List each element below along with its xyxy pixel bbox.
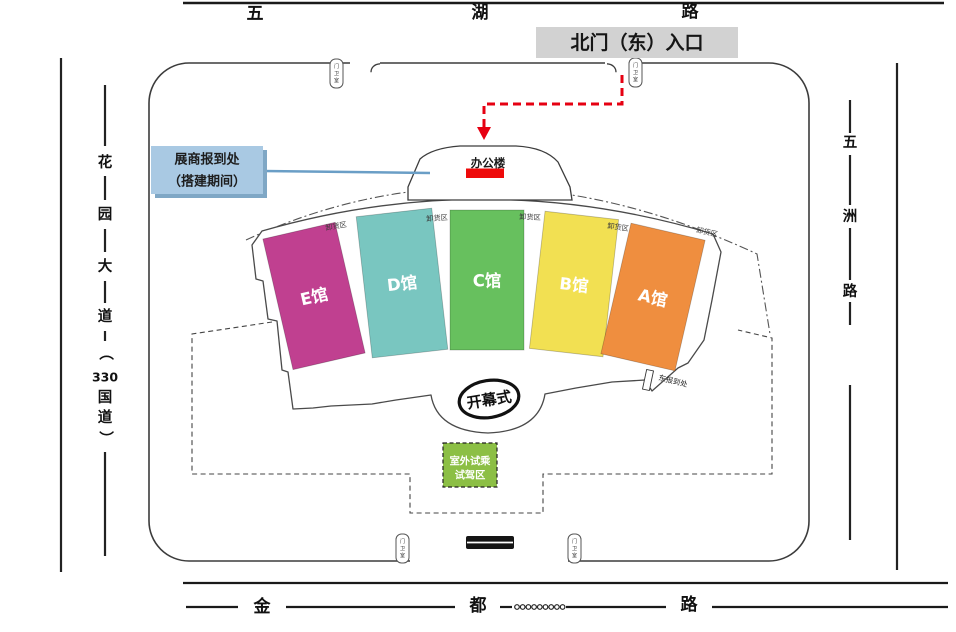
road-left-char: 道 [98,307,113,325]
road-left-char: 道 [98,408,113,426]
road-left-char: 花 [98,153,113,171]
road-right-char: 路 [843,282,858,300]
outdoor-test-drive-zone: 室外试乘 试驾区 [443,443,497,487]
road-bottom-jindu: 金 都 路 [183,583,948,617]
road-bottom-char: 路 [681,594,699,615]
road-left-huayuan-avenue: 花 园 大 道 （ 330 国 道 ） [61,58,118,572]
road-left-number: 330 [92,370,118,385]
exhibitor-checkin-callout: 展商报到处 （搭建期间） [151,146,430,198]
unloading-area-label: 卸货区 [426,213,448,223]
exhibitor-checkin-pointer-line [263,171,430,173]
road-top-wuhu: 五 湖 路 [183,1,944,24]
entrance-route-arrowhead [477,127,491,140]
road-top-char: 五 [247,4,264,24]
road-left-paren: ） [97,431,115,446]
office-building-red-marker [466,169,504,179]
outdoor-test-drive-label: 试驾区 [455,469,486,482]
exhibitor-checkin-label-line2: （搭建期间） [168,174,246,190]
site-map: 门 卫 室 五 湖 路 金 都 路 花 园 [0,0,956,632]
north-gate-label: 北门（东）入口 [536,27,738,58]
road-bottom-dots [515,605,565,610]
office-building: 办公楼 [408,146,572,200]
entrance-route-dashed-path [484,75,622,127]
road-bottom-char: 都 [469,595,487,616]
road-top-char: 湖 [472,3,489,23]
entrance-route [477,75,622,140]
road-left-char: 园 [98,206,113,223]
exhibitor-checkin-label-line1: 展商报到处 [174,152,240,168]
gate-opening [410,553,568,573]
road-left-char: 大 [98,257,113,275]
road-right-char: 五 [843,135,858,151]
exhibition-site-map-page: 门 卫 室 五 湖 路 金 都 路 花 园 [0,0,956,632]
hall-b-label: B馆 [558,273,589,296]
road-bottom-char: 金 [253,596,272,617]
gate-house-north-east [629,58,642,87]
gate-opening [350,54,380,72]
road-top-char: 路 [682,1,700,22]
gate-house-south-east [568,534,581,563]
gate-house-north-west [330,59,343,88]
north-gate-label-text: 北门（东）入口 [570,31,703,54]
hall-d-label: D馆 [386,272,418,295]
gate-house-south-west [396,534,409,563]
south-gate-bar [466,536,514,549]
office-building-label: 办公楼 [471,156,506,170]
outdoor-test-drive-label: 室外试乘 [450,455,492,468]
unloading-area-label: 卸货区 [519,212,541,222]
east-checkin-label: 东报到处 [658,373,689,389]
road-left-char: 国 [98,389,113,406]
hall-c: C馆 [450,210,524,350]
road-left-paren: （ [97,346,115,361]
road-right-wuzhou: 五 洲 路 [843,63,897,570]
hall-c-label: C馆 [473,271,502,291]
hall-d: D馆 [356,208,448,358]
road-right-char: 洲 [843,208,858,225]
